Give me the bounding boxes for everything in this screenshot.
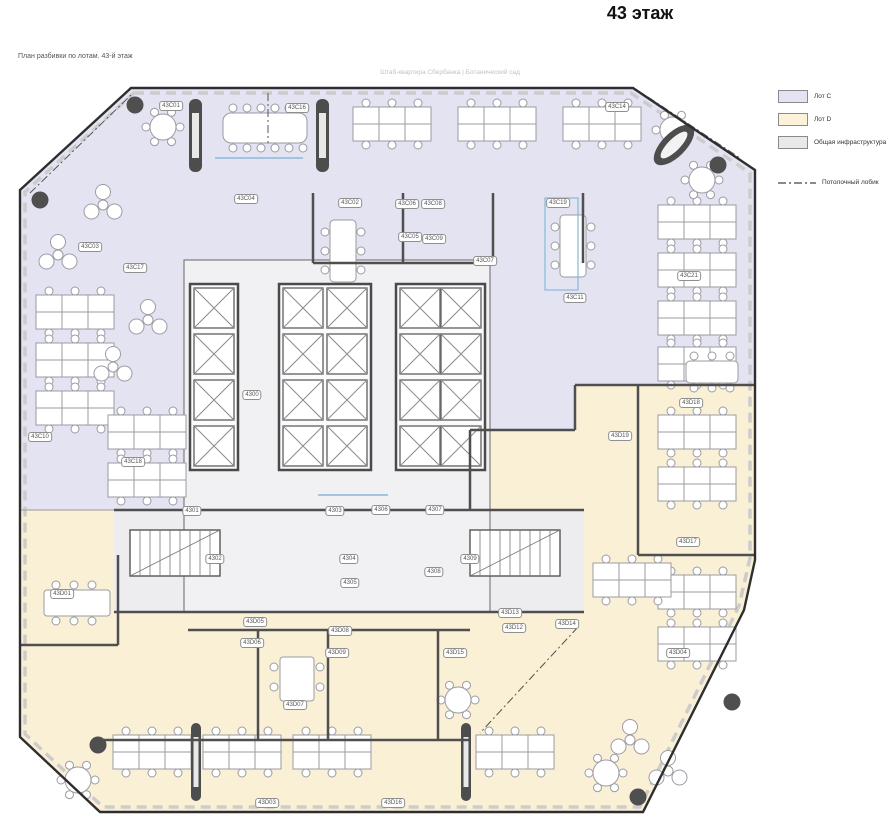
- room-label: 43D09: [325, 648, 349, 658]
- room-label: 43C19: [546, 198, 570, 208]
- room-label: 43C03: [78, 242, 102, 252]
- legend-item-ceiling-line: Потолочный лобик: [778, 179, 894, 186]
- room-label: 43C04: [234, 194, 258, 204]
- lot-c-label: Лот C: [814, 93, 831, 100]
- room-label: 43D12: [502, 623, 526, 633]
- room-label: 4303: [325, 506, 344, 516]
- watermark-text: Штаб-квартира Сбербанка | Ботанический с…: [380, 69, 520, 76]
- lot-d-label: Лот D: [814, 116, 831, 123]
- dash-dot-line-symbol: [778, 180, 816, 186]
- room-label: 4308: [424, 567, 443, 577]
- room-label: 43C06: [395, 199, 419, 209]
- legend-item-lot-d: Лот D: [778, 113, 894, 126]
- lot-c-swatch: [778, 90, 808, 103]
- room-label: 43C10: [28, 432, 52, 442]
- room-label: 43C01: [159, 101, 183, 111]
- floor-plan: 43C0143C1643C1443C0443C0243C0643C0843C05…: [18, 85, 758, 815]
- room-label: 43D14: [555, 619, 579, 629]
- infra-swatch: [778, 136, 808, 149]
- page: { "page": { "title": "43 этаж", "caption…: [0, 0, 896, 832]
- ceiling-line-label: Потолочный лобик: [822, 179, 879, 186]
- room-labels-layer: 43C0143C1643C1443C0443C0243C0643C0843C05…: [18, 85, 758, 815]
- room-label: 43C14: [605, 102, 629, 112]
- legend-item-lot-c: Лот C: [778, 90, 894, 103]
- room-label: 43D01: [50, 589, 74, 599]
- room-label: 43D03: [255, 798, 279, 808]
- room-label: 43D05: [243, 617, 267, 627]
- room-label: 4301: [182, 506, 201, 516]
- legend-item-infra: Общая инфраструктура: [778, 136, 894, 149]
- room-label: 43D18: [679, 398, 703, 408]
- room-label: 43C11: [563, 293, 586, 303]
- room-label: 4306: [371, 505, 390, 515]
- room-label: 4305: [340, 578, 359, 588]
- room-label: 4300: [242, 390, 261, 400]
- plan-caption: План разбивки по лотам. 43-й этаж: [18, 53, 133, 60]
- room-label: 43D19: [608, 431, 632, 441]
- room-label: 4307: [425, 505, 444, 515]
- lot-d-swatch: [778, 113, 808, 126]
- room-label: 43C07: [473, 256, 497, 266]
- room-label: 43C17: [123, 263, 147, 273]
- room-label: 43C02: [338, 198, 362, 208]
- page-title: 43 этаж: [607, 3, 673, 24]
- legend: Лот C Лот D Общая инфраструктура Потолоч…: [778, 90, 894, 186]
- room-label: 4304: [339, 554, 358, 564]
- room-label: 43C08: [421, 199, 445, 209]
- room-label: 43D06: [240, 638, 264, 648]
- room-label: 43D17: [676, 537, 700, 547]
- room-label: 43C16: [285, 103, 309, 113]
- infra-label: Общая инфраструктура: [814, 139, 886, 146]
- room-label: 43D16: [381, 798, 405, 808]
- room-label: 4309: [460, 554, 479, 564]
- room-label: 43D08: [328, 626, 352, 636]
- room-label: 43C09: [422, 234, 446, 244]
- room-label: 43C05: [398, 232, 422, 242]
- room-label: 43C18: [121, 457, 145, 467]
- room-label: 43C21: [677, 271, 701, 281]
- room-label: 43D04: [666, 648, 690, 658]
- room-label: 43D07: [283, 700, 307, 710]
- room-label: 43D13: [498, 608, 522, 618]
- room-label: 43D15: [443, 648, 467, 658]
- room-label: 4302: [205, 554, 224, 564]
